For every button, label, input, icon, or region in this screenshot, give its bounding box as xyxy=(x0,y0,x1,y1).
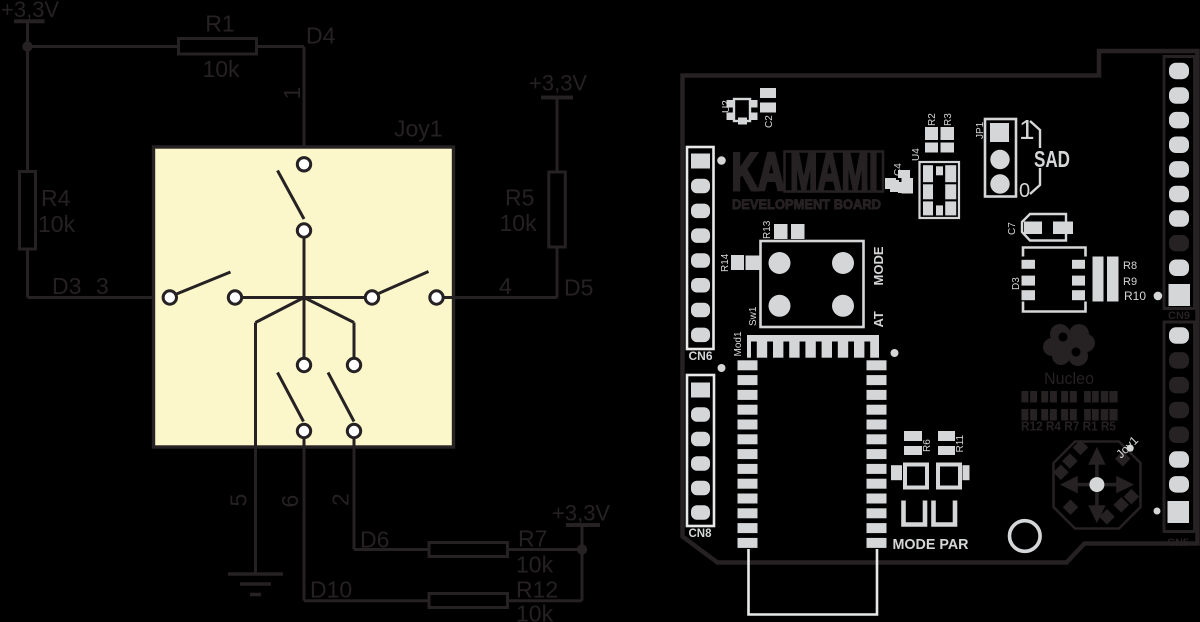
svg-text:R11: R11 xyxy=(955,434,966,452)
svg-text:D4: D4 xyxy=(306,23,336,49)
svg-text:R6: R6 xyxy=(922,439,933,452)
svg-text:Mod1: Mod1 xyxy=(733,331,744,356)
svg-text:D5: D5 xyxy=(564,275,593,301)
svg-text:SAD: SAD xyxy=(1034,146,1070,172)
svg-text:D6: D6 xyxy=(360,527,389,553)
svg-text:+3,3V: +3,3V xyxy=(552,501,610,526)
svg-text:AT: AT xyxy=(871,311,886,327)
svg-text:1: 1 xyxy=(1019,114,1035,145)
svg-text:DEVELOPMENT BOARD: DEVELOPMENT BOARD xyxy=(732,196,881,212)
svg-text:R1: R1 xyxy=(205,11,234,37)
svg-text:10k: 10k xyxy=(202,56,240,82)
svg-text:R9: R9 xyxy=(1123,276,1137,288)
svg-text:CN6: CN6 xyxy=(689,349,713,363)
svg-text:10k: 10k xyxy=(516,601,554,622)
svg-text:D10: D10 xyxy=(310,577,352,603)
svg-text:+3,3V: +3,3V xyxy=(1,0,59,22)
svg-text:CN9: CN9 xyxy=(1168,310,1190,322)
svg-text:R2: R2 xyxy=(927,113,938,126)
svg-text:2: 2 xyxy=(328,493,354,506)
svg-text:CN8: CN8 xyxy=(689,526,712,540)
svg-text:1: 1 xyxy=(279,87,305,100)
svg-text:0: 0 xyxy=(1019,180,1030,202)
svg-text:C7: C7 xyxy=(1007,222,1018,235)
svg-text:R14: R14 xyxy=(720,253,731,272)
svg-text:6: 6 xyxy=(277,495,303,508)
svg-text:U4: U4 xyxy=(911,148,922,161)
svg-text:10k: 10k xyxy=(38,211,76,237)
svg-text:+3,3V: +3,3V xyxy=(529,71,587,96)
svg-text:R3: R3 xyxy=(943,113,954,126)
svg-text:R5: R5 xyxy=(505,185,534,211)
svg-text:MAMI: MAMI xyxy=(790,143,878,202)
svg-text:R8: R8 xyxy=(1123,260,1137,272)
svg-text:R12 R4 R7 R1 R5: R12 R4 R7 R1 R5 xyxy=(1021,419,1116,434)
svg-text:R13: R13 xyxy=(762,220,773,239)
svg-text:10k: 10k xyxy=(516,552,554,578)
svg-text:C4: C4 xyxy=(893,163,904,176)
svg-text:CN5: CN5 xyxy=(1167,537,1189,549)
svg-text:D3: D3 xyxy=(52,273,81,299)
svg-text:KA: KA xyxy=(732,143,785,202)
svg-text:Nucleo: Nucleo xyxy=(1044,369,1094,388)
svg-text:C2: C2 xyxy=(764,115,775,128)
svg-text:5: 5 xyxy=(226,494,252,507)
svg-text:R7: R7 xyxy=(518,526,547,552)
svg-text:Sw1: Sw1 xyxy=(748,306,759,326)
svg-text:10k: 10k xyxy=(500,210,538,236)
svg-text:Joy1: Joy1 xyxy=(394,116,443,142)
svg-text:4: 4 xyxy=(499,273,512,299)
svg-text:3: 3 xyxy=(96,273,109,299)
svg-text:MODE: MODE xyxy=(871,246,886,285)
svg-text:R10: R10 xyxy=(1124,289,1146,303)
svg-text:R12: R12 xyxy=(516,577,558,603)
svg-text:D3: D3 xyxy=(1011,277,1022,290)
svg-text:MODE PAR: MODE PAR xyxy=(893,536,969,553)
svg-text:R4: R4 xyxy=(41,185,71,211)
